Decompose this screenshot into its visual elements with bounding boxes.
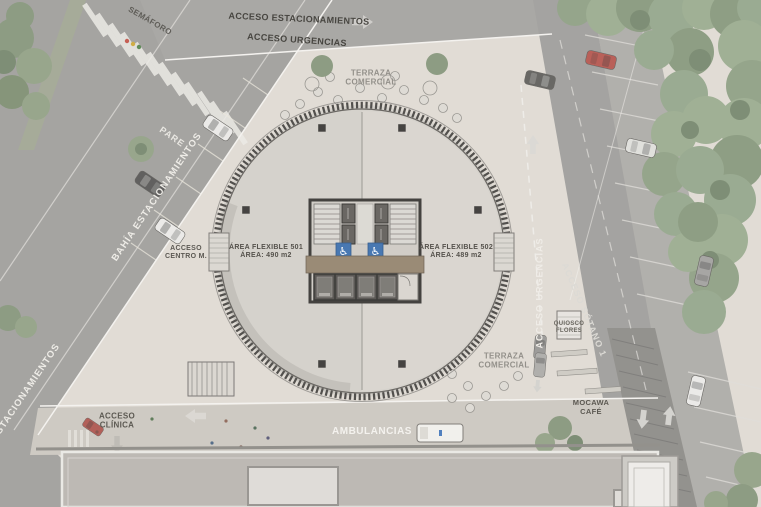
site-plan: ♿ ♿ [0, 0, 761, 507]
haze-overlay [0, 0, 761, 507]
site-plan-drawing: ♿ ♿ [0, 0, 761, 507]
